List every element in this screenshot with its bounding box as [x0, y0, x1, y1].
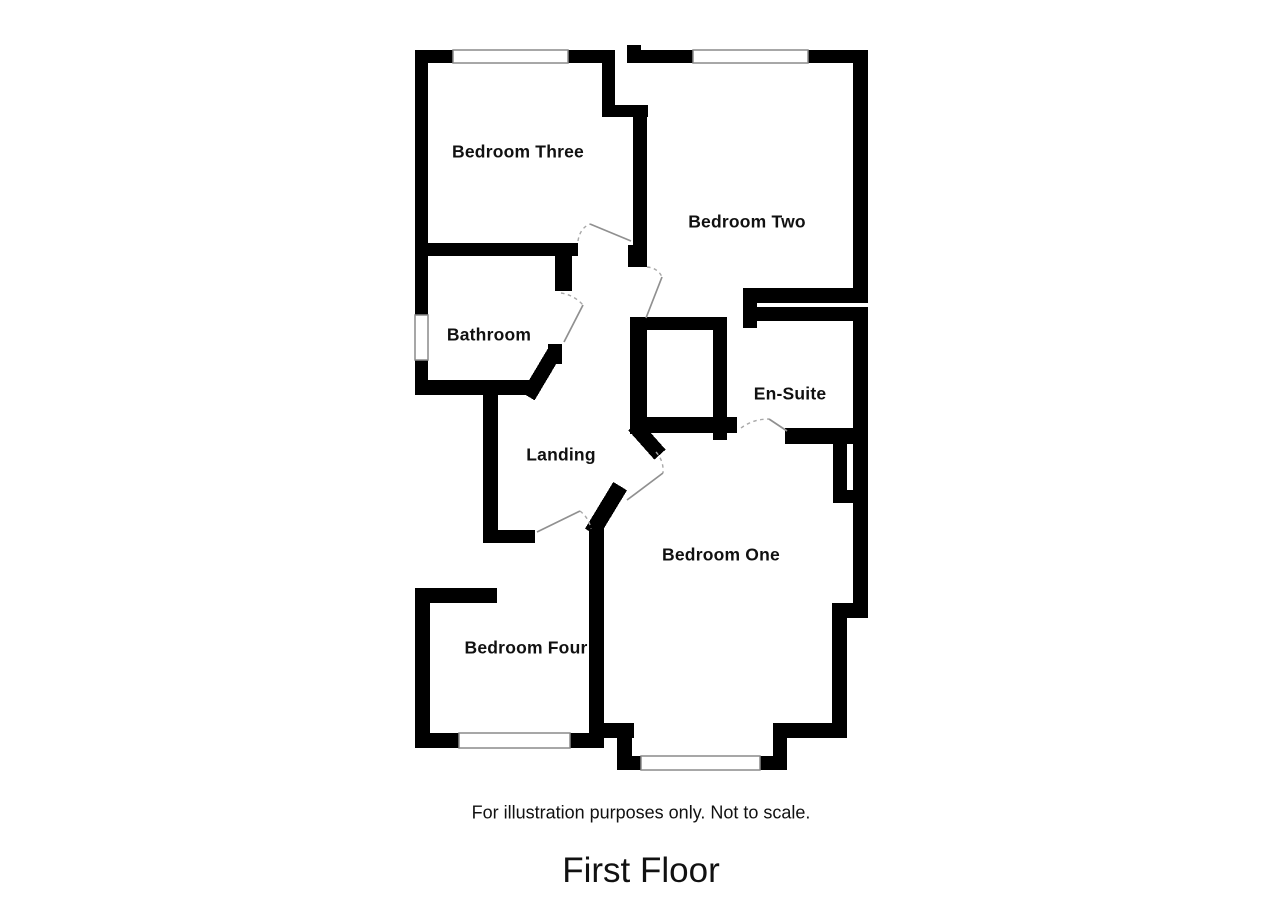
room-label-bedroom-four: Bedroom Four: [465, 638, 588, 659]
floor-plan-page: Bedroom Three Bedroom Two Bathroom En-Su…: [0, 0, 1280, 905]
window-bedroom-two: [693, 50, 808, 63]
disclaimer-note: For illustration purposes only. Not to s…: [472, 803, 811, 824]
door-leaf-bedroom-four: [537, 511, 580, 532]
room-label-landing: Landing: [526, 445, 595, 466]
window-bedroom-three: [453, 50, 568, 63]
window-bathroom: [415, 315, 428, 360]
door-leaf-bedroom-one: [627, 473, 663, 500]
room-label-bathroom: Bathroom: [447, 325, 531, 346]
room-label-bedroom-two: Bedroom Two: [688, 212, 806, 233]
room-label-bedroom-one: Bedroom One: [662, 545, 780, 566]
doors-layer: [537, 224, 787, 532]
door-arc-bedroom-two: [647, 267, 662, 277]
floor-title: First Floor: [562, 851, 720, 891]
room-label-bedroom-three: Bedroom Three: [452, 142, 584, 163]
door-leaf-bathroom: [564, 305, 583, 342]
door-arc-en-suite: [741, 419, 769, 428]
door-leaf-bedroom-three: [590, 224, 631, 241]
room-label-en-suite: En-Suite: [754, 384, 827, 405]
door-leaf-en-suite: [769, 419, 787, 431]
window-bedroom-four: [459, 733, 570, 748]
floor-plan-drawing: [0, 0, 1280, 905]
door-leaf-bedroom-two: [646, 277, 662, 318]
door-arc-bedroom-three: [578, 224, 590, 241]
window-bay-bedroom-one: [641, 756, 760, 770]
door-arc-bathroom: [561, 293, 583, 305]
